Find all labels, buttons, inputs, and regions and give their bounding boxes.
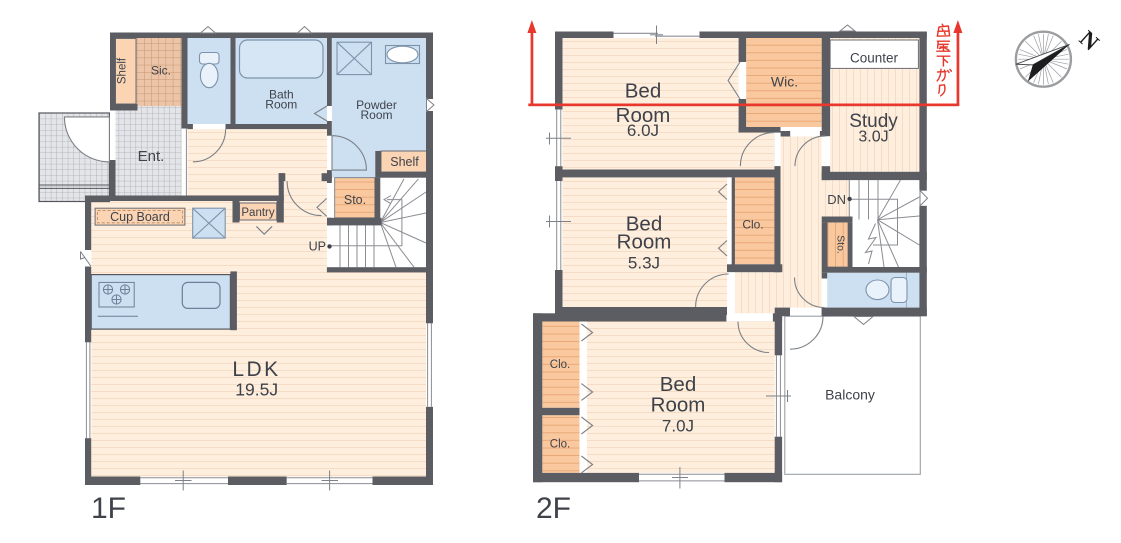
svg-text:Cup Board: Cup Board — [110, 210, 170, 224]
svg-text:Sic.: Sic. — [151, 64, 171, 78]
svg-text:Pantry: Pantry — [241, 207, 274, 219]
svg-text:Sto.: Sto. — [835, 235, 847, 254]
svg-text:7.0J: 7.0J — [662, 417, 694, 436]
svg-text:Shelf: Shelf — [390, 155, 419, 169]
svg-text:Balcony: Balcony — [825, 387, 875, 403]
svg-text:LDK: LDK — [232, 358, 280, 381]
svg-text:Room: Room — [265, 98, 297, 112]
svg-text:19.5J: 19.5J — [235, 380, 278, 400]
svg-text:Shelf: Shelf — [117, 57, 129, 84]
svg-text:3.0J: 3.0J — [858, 129, 888, 146]
svg-text:Clo.: Clo. — [550, 439, 570, 451]
svg-text:1F: 1F — [91, 492, 126, 525]
svg-text:Room: Room — [651, 394, 706, 417]
svg-text:UP: UP — [309, 240, 326, 254]
svg-text:6.0J: 6.0J — [627, 121, 659, 140]
svg-text:Counter: Counter — [850, 51, 899, 66]
svg-text:Clo.: Clo. — [550, 359, 570, 371]
svg-text:Clo.: Clo. — [742, 218, 763, 232]
svg-text:Room: Room — [360, 108, 392, 122]
svg-text:Bed: Bed — [625, 79, 661, 102]
svg-text:DN: DN — [827, 192, 846, 207]
svg-text:Sto.: Sto. — [344, 193, 366, 207]
svg-text:Room: Room — [617, 231, 672, 254]
svg-text:Ent.: Ent. — [138, 148, 165, 165]
svg-text:2F: 2F — [536, 492, 571, 525]
svg-text:5.3J: 5.3J — [628, 254, 660, 273]
svg-text:Wic.: Wic. — [771, 74, 798, 90]
